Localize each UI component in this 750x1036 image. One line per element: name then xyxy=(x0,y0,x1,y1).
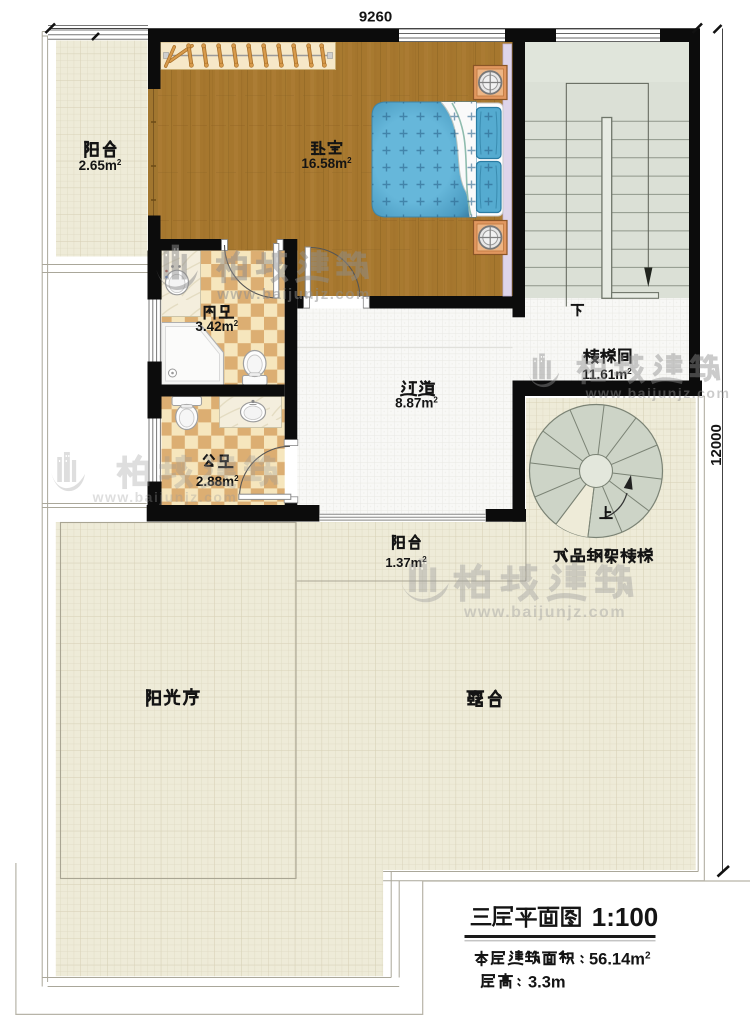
svg-text:9260: 9260 xyxy=(359,9,392,26)
svg-text:www.baijunjz.com: www.baijunjz.com xyxy=(216,286,370,303)
svg-text:www.baijunjz.com: www.baijunjz.com xyxy=(92,489,238,505)
svg-text:16.58m2: 16.58m2 xyxy=(301,156,352,171)
svg-text:8.87m2: 8.87m2 xyxy=(395,396,438,411)
svg-text:www.baijunjz.com: www.baijunjz.com xyxy=(585,385,731,401)
svg-text:3.42m2: 3.42m2 xyxy=(195,319,238,334)
svg-text:3.3m: 3.3m xyxy=(528,974,566,992)
svg-text:2.65m2: 2.65m2 xyxy=(79,158,122,173)
svg-text:12000: 12000 xyxy=(708,424,725,466)
svg-text:www.baijunjz.com: www.baijunjz.com xyxy=(463,604,626,621)
svg-text:56.14m2: 56.14m2 xyxy=(589,951,651,969)
svg-text:1:100: 1:100 xyxy=(592,902,659,932)
